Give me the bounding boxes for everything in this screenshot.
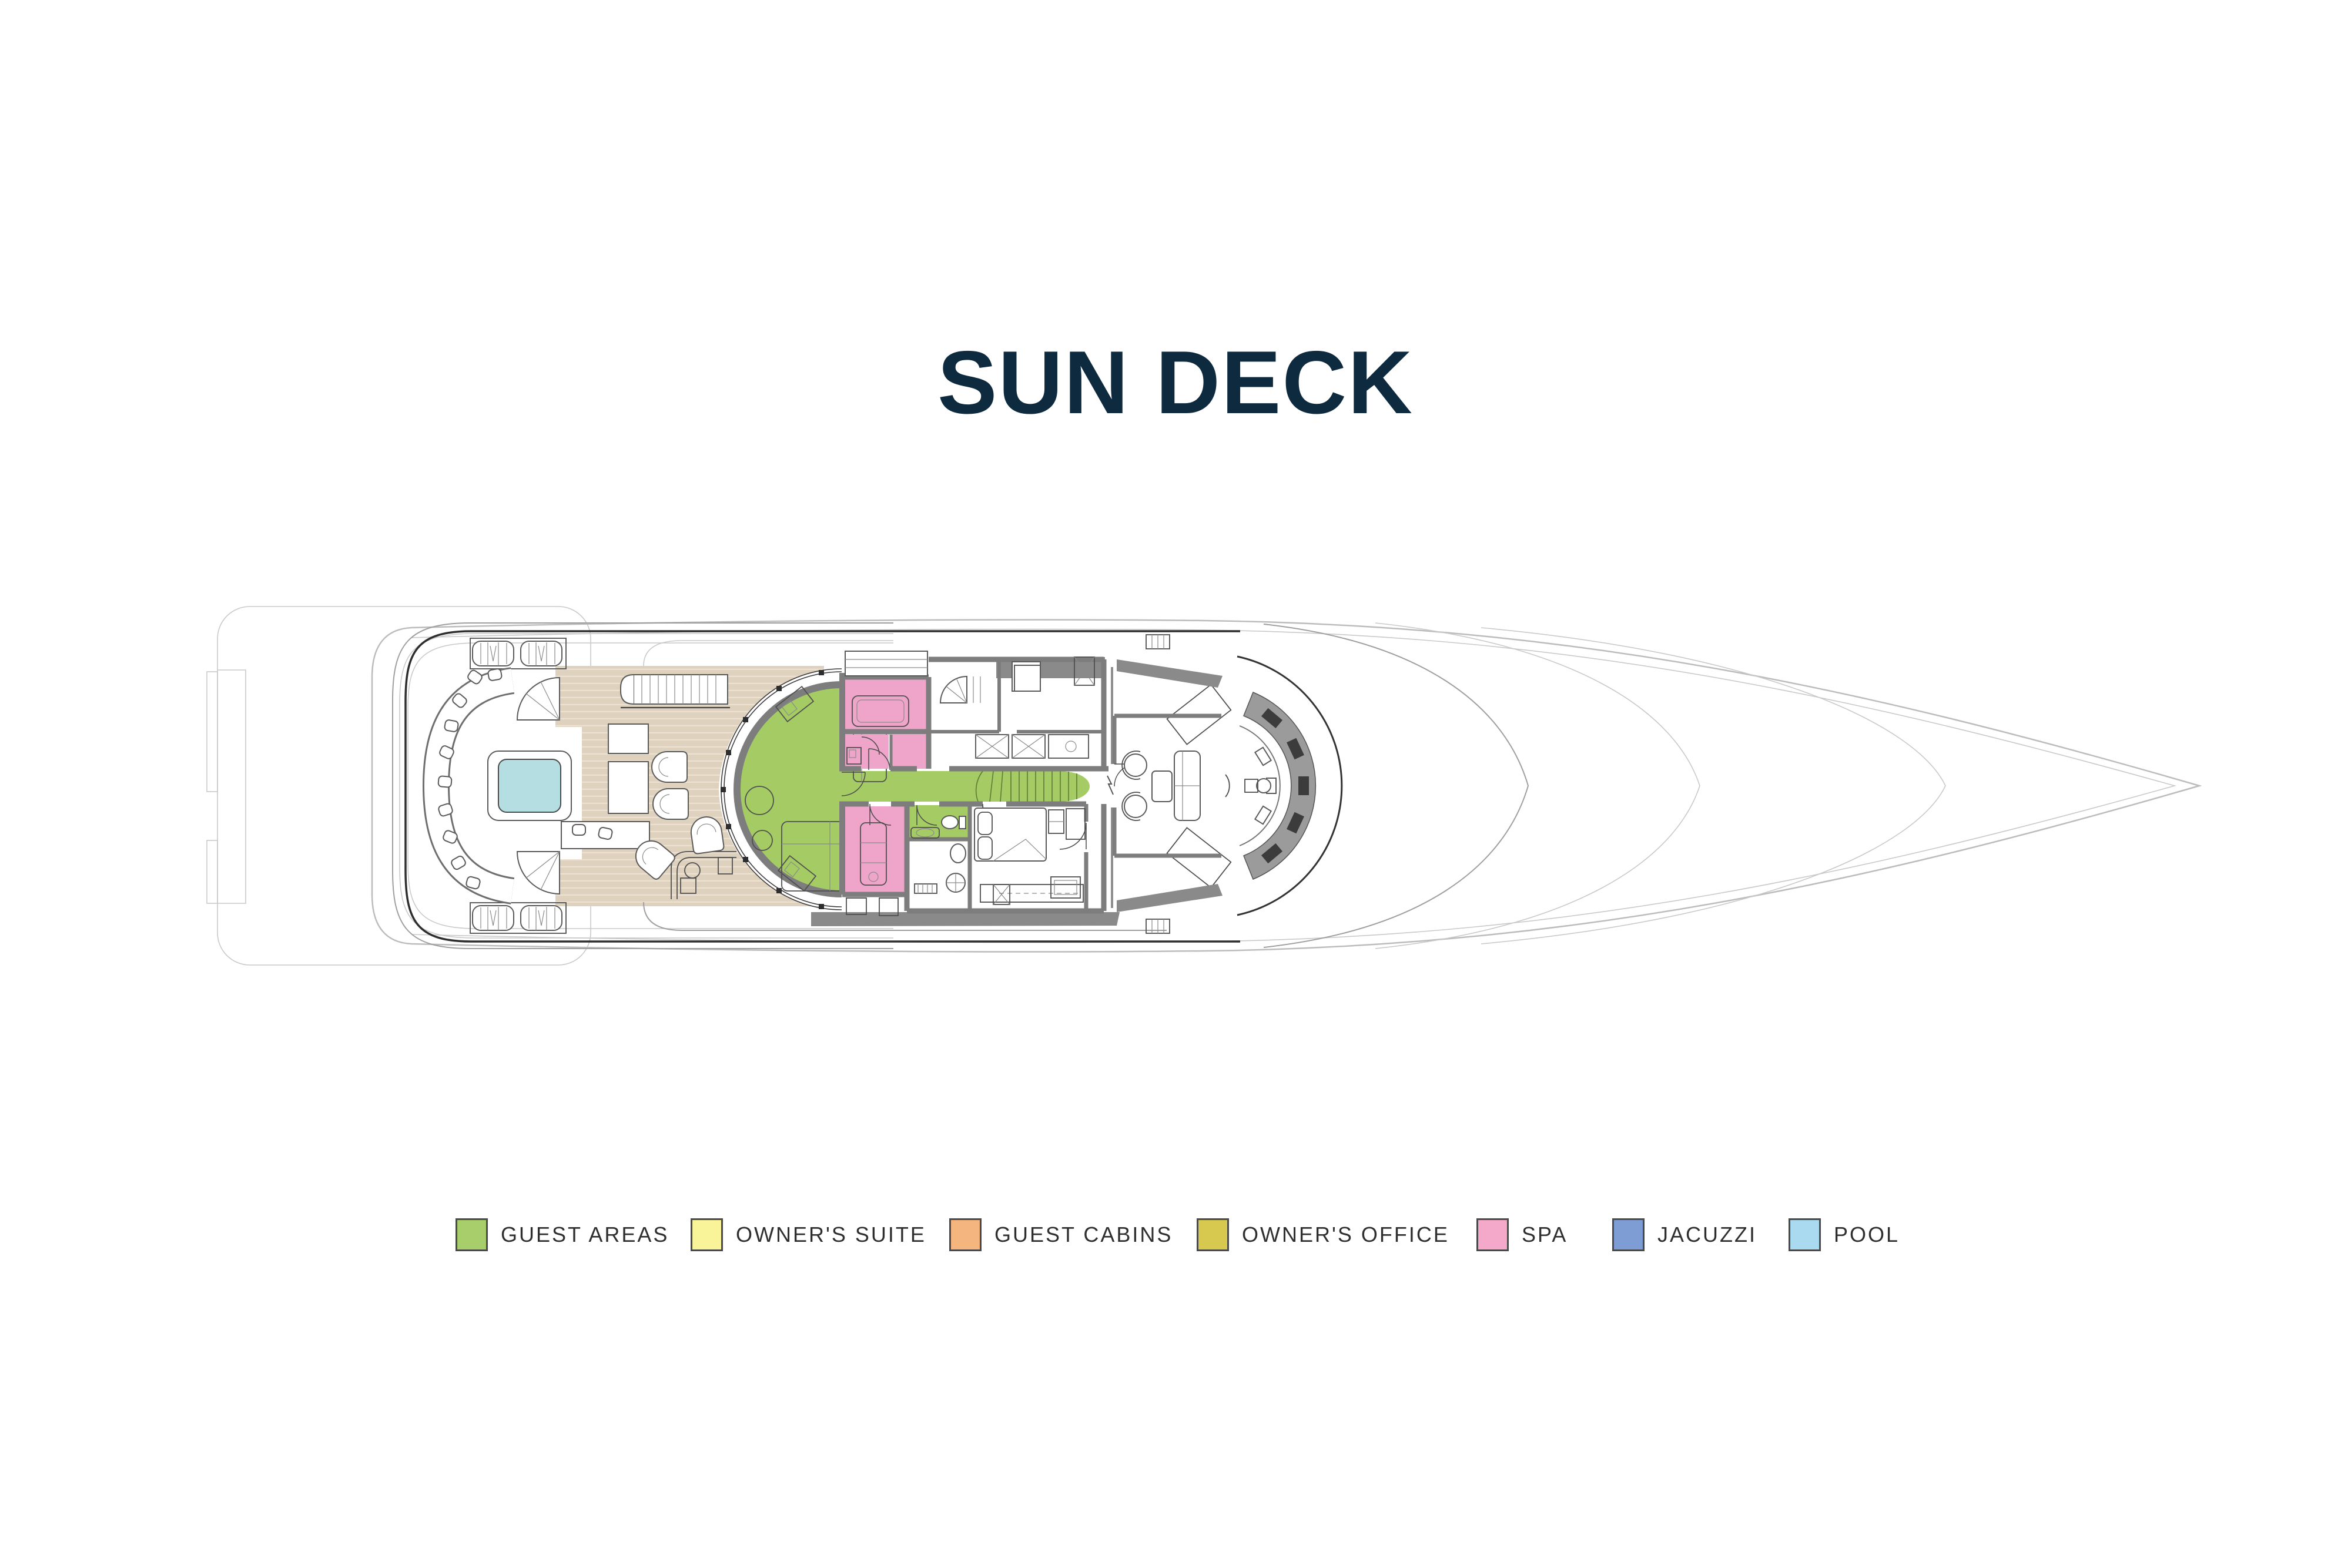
deck-armchair bbox=[652, 752, 687, 782]
pool-area bbox=[488, 751, 571, 820]
pantry-cabinet bbox=[976, 735, 1009, 758]
deck-table-small bbox=[608, 724, 648, 753]
deck-armchair bbox=[653, 789, 688, 819]
coffee-table bbox=[1152, 771, 1172, 802]
bathroom-fixtures bbox=[915, 844, 966, 893]
curved-stair bbox=[940, 676, 980, 703]
skylight bbox=[1014, 665, 1040, 691]
spa-wc bbox=[892, 735, 929, 769]
pantry-counter bbox=[1049, 735, 1089, 758]
deck-stairs bbox=[621, 675, 730, 708]
pool-water bbox=[498, 759, 561, 812]
pantry-cabinet bbox=[1012, 735, 1045, 758]
deck-table-large bbox=[608, 762, 648, 813]
guest-bed bbox=[974, 808, 1046, 861]
deck-plan-page: SUN DECK bbox=[0, 0, 2351, 1568]
yacht-deck-plan bbox=[0, 0, 2351, 1568]
corridor bbox=[840, 771, 978, 802]
bridge-seating bbox=[1122, 751, 1200, 820]
wardrobe bbox=[1066, 809, 1085, 839]
foredeck-curves bbox=[1167, 623, 1945, 949]
electrical-symbol bbox=[1107, 776, 1113, 795]
spa-room-forward bbox=[845, 677, 929, 731]
helm-console bbox=[1225, 692, 1315, 879]
